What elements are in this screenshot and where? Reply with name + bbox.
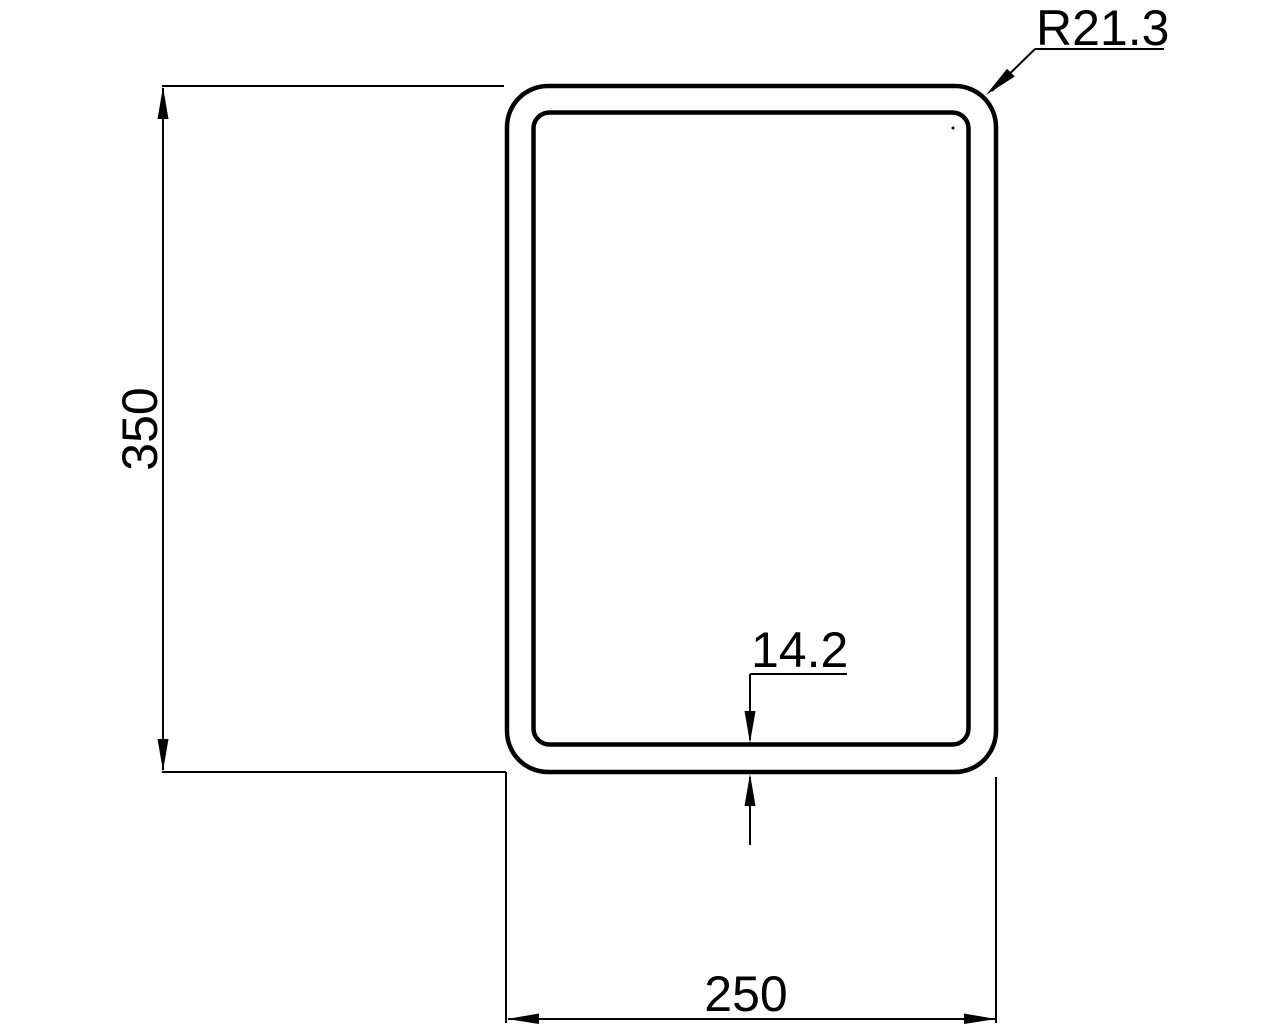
- arrow-up-icon: [158, 87, 169, 119]
- arrow-up-icon: [745, 774, 756, 806]
- wall-thickness-label: 14.2: [751, 622, 848, 678]
- arrow-down-left-icon: [986, 69, 1015, 95]
- wall-thickness-dimension: 14.2: [745, 622, 849, 845]
- arrow-right-icon: [964, 1014, 996, 1024]
- radius-center-mark: [952, 127, 955, 130]
- tube-cross-section-drawing: 350 250 14.2 R21.3: [0, 0, 1280, 1024]
- width-dimension-label: 250: [704, 966, 787, 1022]
- corner-radius-callout: R21.3: [986, 0, 1169, 95]
- height-dimension-label: 350: [112, 387, 168, 470]
- arrow-down-icon: [745, 711, 756, 743]
- height-dimension: 350: [112, 86, 506, 772]
- corner-radius-label: R21.3: [1036, 0, 1169, 56]
- arrow-left-icon: [507, 1014, 539, 1024]
- technical-drawing-canvas: 350 250 14.2 R21.3: [0, 0, 1280, 1024]
- arrow-down-icon: [158, 739, 169, 771]
